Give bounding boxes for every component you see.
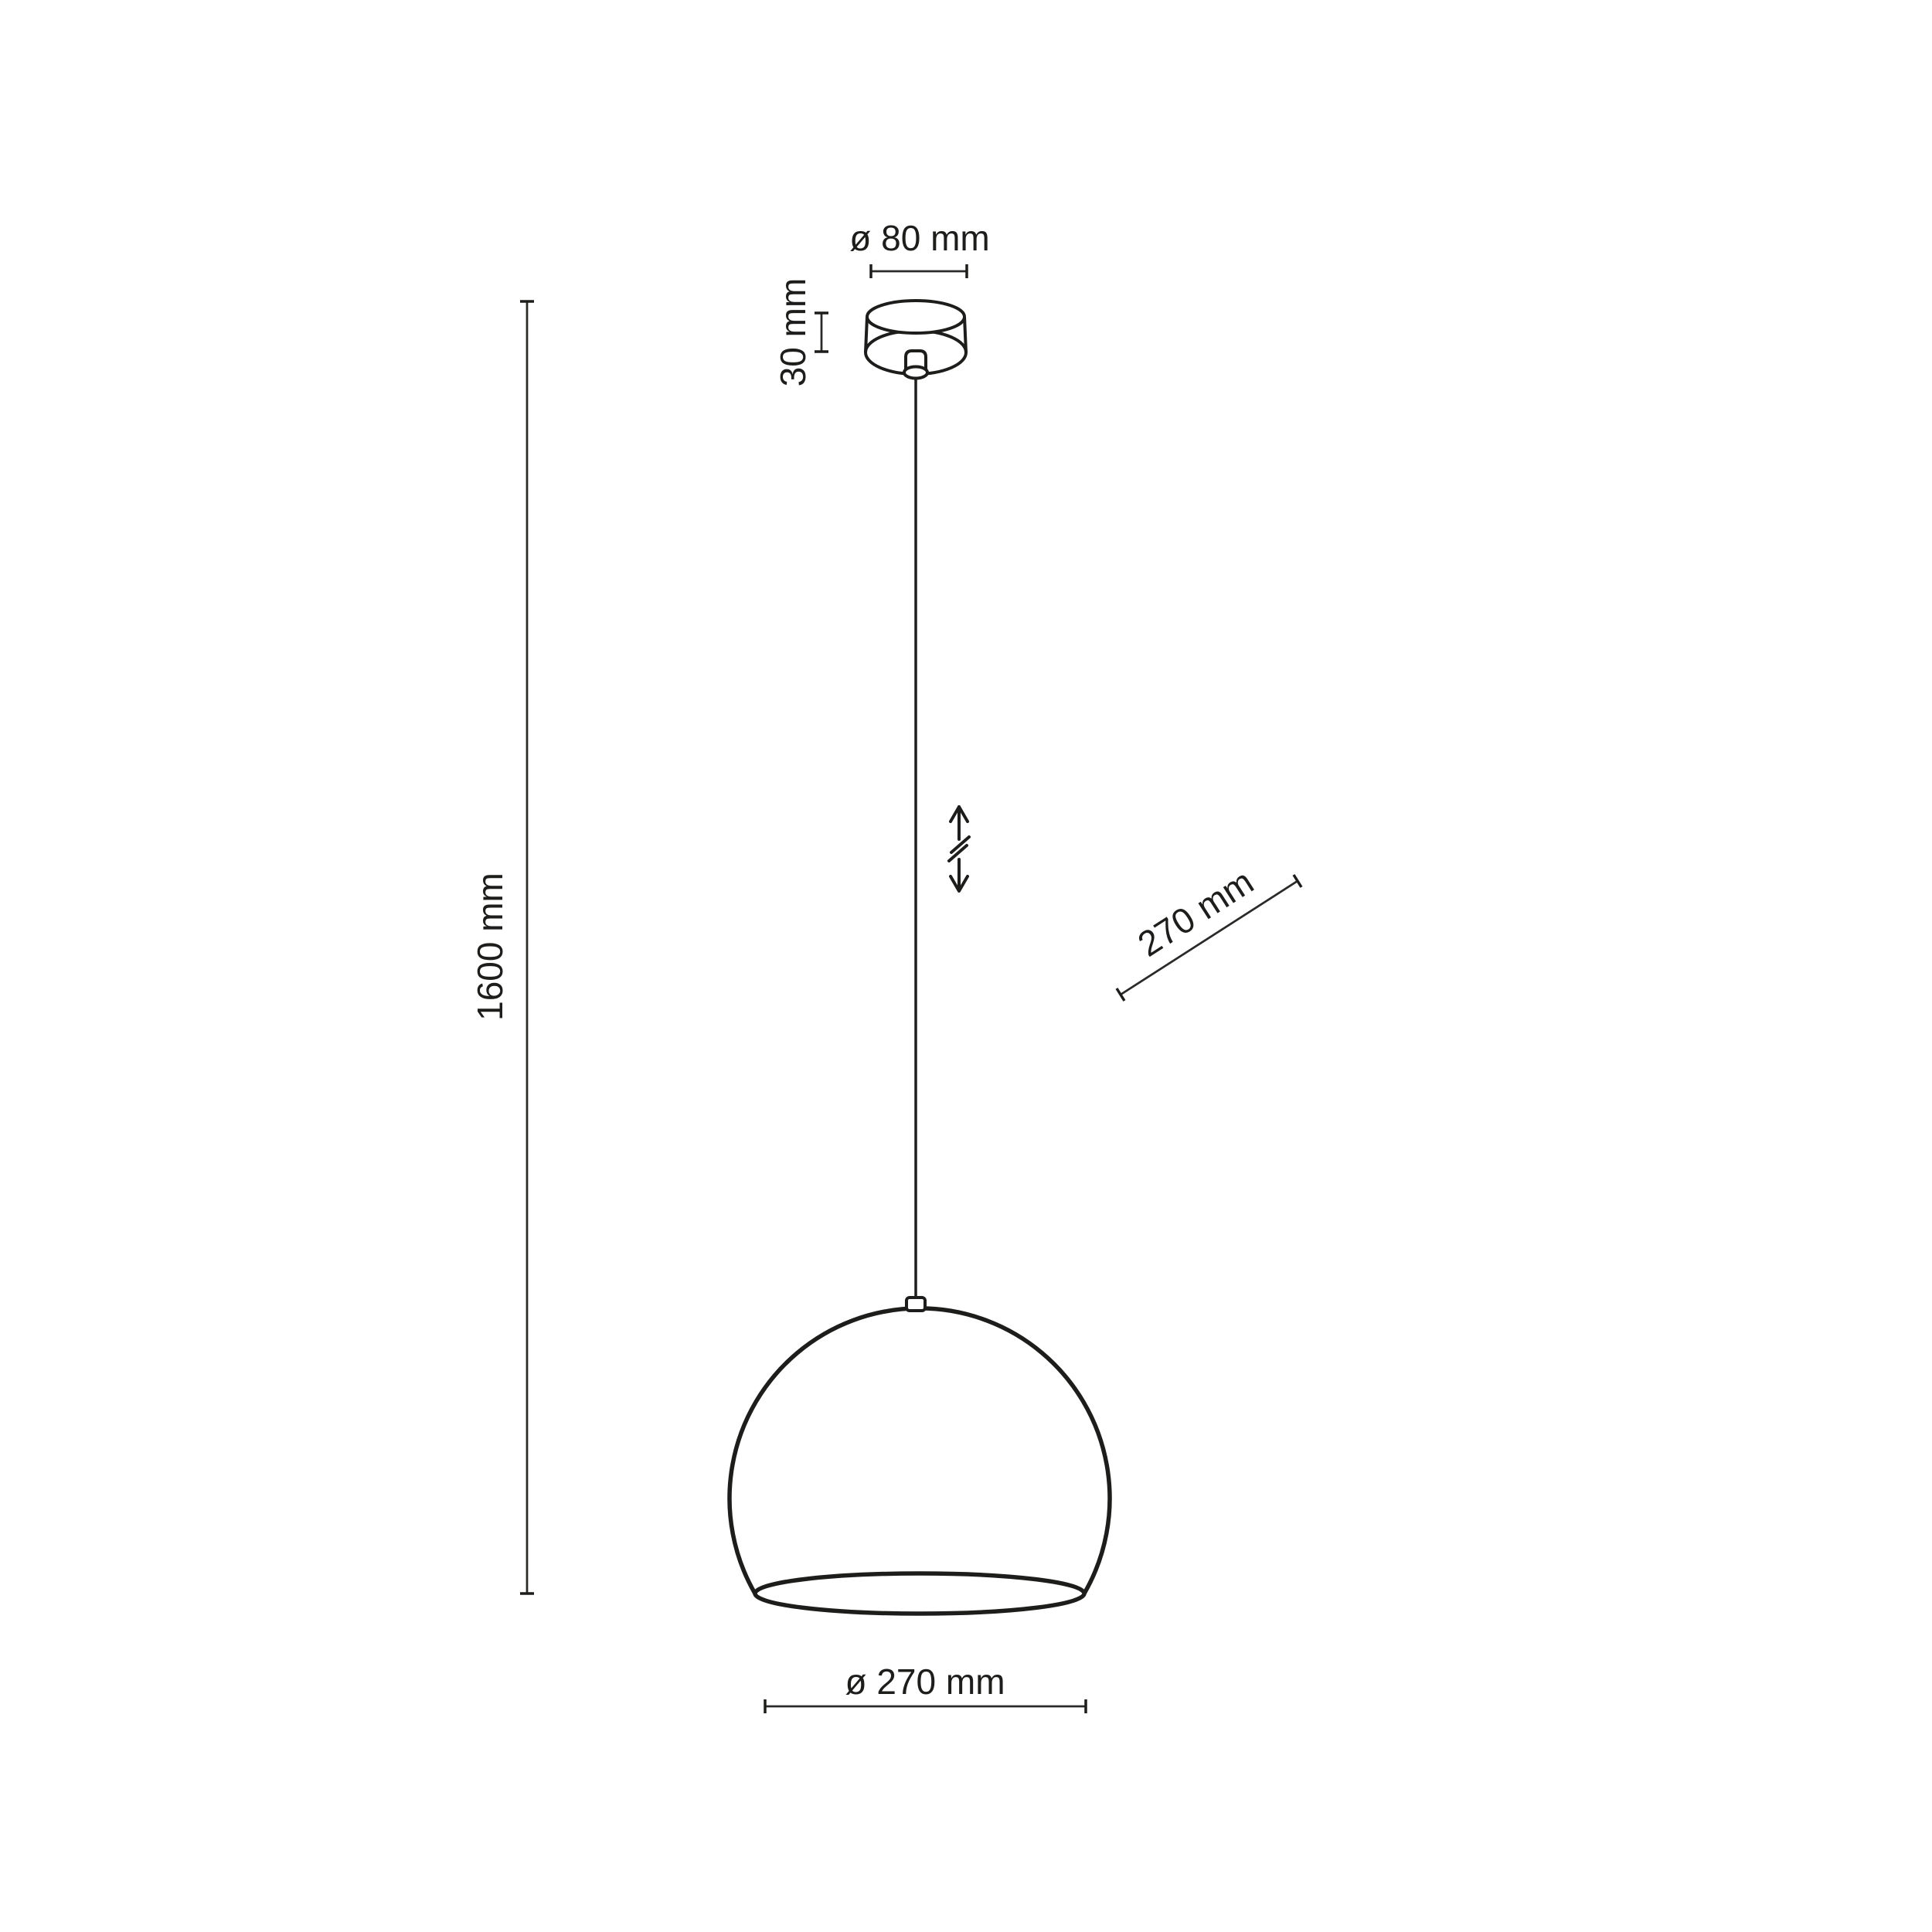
canopy-side-left [866,317,867,352]
ceiling-canopy [866,301,966,379]
canopy-top-ellipse [867,301,964,333]
lamp-shade [730,1298,1110,1614]
overall-height-dimension: 1600 mm [470,301,534,1594]
overall-height-label: 1600 mm [470,872,510,1021]
shade-cable-connector [906,1298,925,1311]
canopy-diameter-label: ø 80 mm [849,218,989,258]
dim-tick [1117,988,1124,1001]
canopy-diameter-dimension: ø 80 mm [849,218,989,278]
dim-tick [1294,875,1301,887]
canopy-height-label: 30 mm [773,278,813,387]
dimension-diagram: ø 80 mm 30 mm 1600 mm [0,0,1932,1932]
shade-diagonal-dimension: 270 mm [1117,861,1301,1001]
shade-diameter-dimension: ø 270 mm [765,1662,1086,1713]
canopy-side-right [964,317,966,352]
shade-outline [730,1308,1110,1594]
shade-bottom-rim [755,1573,1084,1614]
shade-diagonal-label: 270 mm [1131,861,1260,964]
canopy-height-dimension: 30 mm [773,278,828,387]
height-adjustable-icon [949,807,969,891]
cable-gland [904,367,927,379]
shade-diameter-label: ø 270 mm [845,1662,1005,1702]
pendant-lamp-drawing: ø 80 mm 30 mm 1600 mm [0,0,1932,1932]
